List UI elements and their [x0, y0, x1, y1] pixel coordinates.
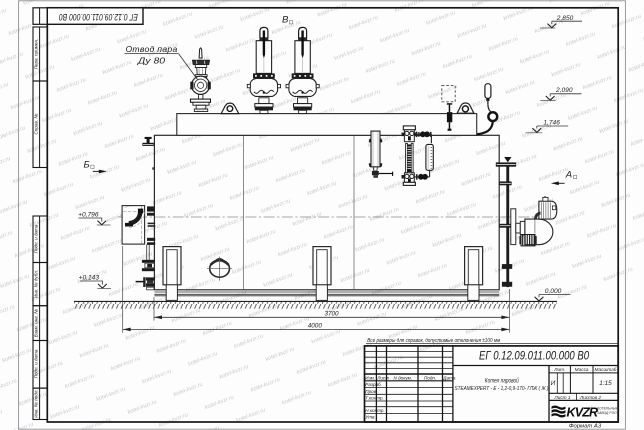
svg-text:kotel-kvzr.ru: kotel-kvzr.ru [208, 0, 240, 10]
svg-text:kotel-kvzr.ru: kotel-kvzr.ru [632, 205, 644, 222]
svg-text:kotel-kvzr.ru: kotel-kvzr.ru [630, 131, 644, 148]
svg-text:Инв. № подл.: Инв. № подл. [34, 389, 39, 418]
svg-text:Подп.: Подп. [424, 375, 436, 380]
svg-text:kotel-kvzr.ru: kotel-kvzr.ru [250, 377, 282, 394]
svg-text:kotel-kvzr.ru: kotel-kvzr.ru [121, 177, 153, 194]
svg-text:kotel-kvzr.ru: kotel-kvzr.ru [0, 408, 4, 425]
svg-text:kotel-kvzr.ru: kotel-kvzr.ru [507, 153, 539, 170]
svg-text:Справ. №: Справ. № [34, 114, 39, 135]
svg-text:kotel-kvzr.ru: kotel-kvzr.ru [442, 53, 474, 70]
svg-text:kotel-kvzr.ru: kotel-kvzr.ru [198, 172, 230, 189]
svg-text:2,090: 2,090 [555, 87, 573, 94]
svg-text:kotel-kvzr.ru: kotel-kvzr.ru [319, 76, 351, 93]
svg-text:2,850: 2,850 [556, 15, 574, 22]
svg-text:kotel-kvzr.ru: kotel-kvzr.ru [87, 90, 119, 107]
svg-text:kotel-kvzr.ru: kotel-kvzr.ru [41, 107, 73, 124]
svg-text:kotel-kvzr.ru: kotel-kvzr.ru [265, 346, 297, 363]
svg-text:kotel-kvzr.ru: kotel-kvzr.ru [519, 49, 551, 66]
svg-text:kotel-kvzr.ru: kotel-kvzr.ru [611, 13, 643, 30]
svg-text:kotel-kvzr.ru: kotel-kvzr.ru [225, 37, 257, 54]
svg-text:Лист: Лист [376, 375, 389, 380]
svg-text:kotel-kvzr.ru: kotel-kvzr.ru [425, 10, 457, 27]
svg-text:Подп. и дата: Подп. и дата [34, 349, 39, 378]
svg-text:kotel-kvzr.ru: kotel-kvzr.ru [584, 149, 616, 166]
svg-text:kotel-kvzr.ru: kotel-kvzr.ru [292, 211, 324, 228]
svg-text:Инв. № дубл.: Инв. № дубл. [34, 270, 39, 298]
svg-text:kotel-kvzr.ru: kotel-kvzr.ru [0, 199, 29, 216]
svg-text:kotel-kvzr.ru: kotel-kvzr.ru [156, 338, 188, 355]
svg-text:kotel-kvzr.ru: kotel-kvzr.ru [0, 156, 12, 173]
svg-text:Н.контр.: Н.контр. [365, 408, 384, 413]
svg-text:kotel-kvzr.ru: kotel-kvzr.ru [50, 404, 82, 421]
svg-text:kotel-kvzr.ru: kotel-kvzr.ru [488, 36, 520, 53]
svg-text:kotel-kvzr.ru: kotel-kvzr.ru [430, 158, 462, 175]
svg-text:kotel-kvzr.ru: kotel-kvzr.ru [73, 120, 105, 137]
svg-text:kotel-kvzr.ru: kotel-kvzr.ru [572, 253, 604, 270]
svg-text:kotel-kvzr.ru: kotel-kvzr.ru [167, 159, 199, 176]
svg-text:ЗАВОД РЭП: ЗАВОД РЭП [597, 411, 617, 415]
svg-text:kotel-kvzr.ru: kotel-kvzr.ru [446, 201, 478, 218]
svg-text:kotel-kvzr.ru: kotel-kvzr.ru [0, 7, 8, 24]
svg-text:kotel-kvzr.ru: kotel-kvzr.ru [551, 62, 583, 79]
svg-text:kotel-kvzr.ru: kotel-kvzr.ru [279, 316, 311, 333]
svg-text:Все размеры для справок, допу: Все размеры для справок, допустимые откл… [367, 338, 500, 344]
svg-text:kotel-kvzr.ru: kotel-kvzr.ru [75, 194, 107, 211]
svg-text:kotel-kvzr.ru: kotel-kvzr.ru [194, 24, 226, 41]
svg-text:kotel-kvzr.ru: kotel-kvzr.ru [473, 66, 505, 83]
svg-text:kotel-kvzr.ru: kotel-kvzr.ru [601, 192, 633, 209]
svg-text:kotel-kvzr.ru: kotel-kvzr.ru [187, 351, 219, 368]
svg-text:kotel-kvzr.ru: kotel-kvzr.ru [0, 304, 17, 321]
svg-text:Формат А3: Формат А3 [569, 424, 602, 430]
svg-text:kotel-kvzr.ru: kotel-kvzr.ru [108, 281, 140, 298]
svg-text:kotel-kvzr.ru: kotel-kvzr.ru [465, 319, 497, 336]
svg-text:КОТЕЛЬНЫЙ: КОТЕЛЬНЫЙ [597, 406, 619, 410]
svg-text:А: А [565, 170, 572, 181]
svg-text:kotel-kvzr.ru: kotel-kvzr.ru [171, 307, 203, 324]
svg-text:Масштаб: Масштаб [595, 367, 617, 372]
svg-text:N докум.: N докум. [394, 375, 413, 380]
svg-text:kotel-kvzr.ru: kotel-kvzr.ru [296, 359, 328, 376]
svg-text:kotel-kvzr.ru: kotel-kvzr.ru [25, 64, 57, 81]
svg-text:Дата: Дата [442, 375, 456, 380]
svg-text:kotel-kvzr.ru: kotel-kvzr.ru [569, 179, 601, 196]
svg-text:kotel-kvzr.ru: kotel-kvzr.ru [428, 84, 460, 101]
svg-text:kotel-kvzr.ru: kotel-kvzr.ru [386, 250, 418, 267]
svg-text:Изм.: Изм. [365, 375, 375, 380]
svg-text:kotel-kvzr.ru: kotel-kvzr.ru [357, 311, 389, 328]
svg-text:Ду 80: Ду 80 [137, 55, 165, 65]
svg-text:kotel-kvzr.ru: kotel-kvzr.ru [56, 77, 88, 94]
svg-text:kotel-kvzr.ru: kotel-kvzr.ru [348, 15, 380, 32]
svg-text:kotel-kvzr.ru: kotel-kvzr.ru [173, 381, 205, 398]
svg-text:kotel-kvzr.ru: kotel-kvzr.ru [240, 6, 272, 23]
svg-text:KVZR: KVZR [567, 406, 599, 420]
svg-text:В: В [282, 15, 289, 26]
svg-text:kotel-kvzr.ru: kotel-kvzr.ru [219, 364, 251, 381]
svg-text:kotel-kvzr.ru: kotel-kvzr.ru [4, 421, 36, 430]
svg-text:kotel-kvzr.ru: kotel-kvzr.ru [202, 320, 234, 337]
svg-text:kotel-kvzr.ru: kotel-kvzr.ru [617, 236, 644, 253]
svg-text:kotel-kvzr.ru: kotel-kvzr.ru [204, 394, 236, 411]
svg-text:kotel-kvzr.ru: kotel-kvzr.ru [119, 103, 151, 120]
svg-text:kotel-kvzr.ru: kotel-kvzr.ru [263, 272, 295, 289]
svg-text:0,000: 0,000 [545, 288, 562, 295]
svg-text:kotel-kvzr.ru: kotel-kvzr.ru [555, 210, 587, 227]
svg-text:kotel-kvzr.ru: kotel-kvzr.ru [91, 238, 123, 255]
svg-text:Б: Б [84, 159, 90, 170]
svg-text:kotel-kvzr.ru: kotel-kvzr.ru [354, 237, 386, 254]
svg-text:kotel-kvzr.ru: kotel-kvzr.ru [185, 277, 217, 294]
svg-text:kotel-kvzr.ru: kotel-kvzr.ru [415, 189, 447, 206]
svg-text:Перв. примен.: Перв. примен. [34, 39, 39, 70]
svg-text:kotel-kvzr.ru: kotel-kvzr.ru [553, 136, 585, 153]
svg-text:Листов 2: Листов 2 [579, 395, 601, 400]
svg-text:Разраб.: Разраб. [365, 382, 382, 387]
svg-text:kotel-kvzr.ru: kotel-kvzr.ru [306, 180, 338, 197]
svg-text:kotel-kvzr.ru: kotel-kvzr.ru [229, 185, 261, 202]
svg-text:kotel-kvzr.ru: kotel-kvzr.ru [628, 57, 644, 74]
svg-text:kotel-kvzr.ru: kotel-kvzr.ru [457, 23, 489, 40]
svg-text:kotel-kvzr.ru: kotel-kvzr.ru [10, 94, 42, 111]
svg-text:kotel-kvzr.ru: kotel-kvzr.ru [526, 271, 558, 288]
svg-text:kotel-kvzr.ru: kotel-kvzr.ru [135, 146, 167, 163]
svg-text:Взам. инв. №: Взам. инв. № [34, 309, 39, 337]
svg-text:kotel-kvzr.ru: kotel-kvzr.ru [246, 228, 278, 245]
svg-text:kotel-kvzr.ru: kotel-kvzr.ru [96, 386, 128, 403]
svg-text:kotel-kvzr.ru: kotel-kvzr.ru [275, 167, 307, 184]
svg-text:kotel-kvzr.ru: kotel-kvzr.ru [365, 58, 397, 75]
svg-text:kotel-kvzr.ru: kotel-kvzr.ru [39, 33, 71, 50]
svg-text:kotel-kvzr.ru: kotel-kvzr.ru [16, 317, 48, 334]
svg-text:kotel-kvzr.ru: kotel-kvzr.ru [158, 412, 190, 429]
svg-text:Т.контр.: Т.контр. [365, 396, 384, 401]
svg-text:Масса: Масса [575, 367, 589, 372]
svg-text:Пров.: Пров. [365, 389, 377, 394]
svg-text:kotel-kvzr.ru: kotel-kvzr.ru [476, 140, 508, 157]
svg-text:kotel-kvzr.ru: kotel-kvzr.ru [0, 334, 2, 351]
svg-text:kotel-kvzr.ru: kotel-kvzr.ru [102, 59, 134, 76]
svg-text:kotel-kvzr.ru: kotel-kvzr.ru [334, 45, 366, 62]
svg-text:kotel-kvzr.ru: kotel-kvzr.ru [0, 125, 27, 142]
svg-text:Котел паровой: Котел паровой [485, 377, 519, 384]
svg-text:3700: 3700 [324, 310, 339, 317]
svg-text:kotel-kvzr.ru: kotel-kvzr.ru [0, 51, 25, 68]
svg-text:kotel-kvzr.ru: kotel-kvzr.ru [64, 373, 96, 390]
svg-text:kotel-kvzr.ru: kotel-kvzr.ru [27, 138, 59, 155]
svg-text:kotel-kvzr.ru: kotel-kvzr.ru [133, 72, 165, 89]
svg-text:kotel-kvzr.ru: kotel-kvzr.ru [400, 219, 432, 236]
svg-text:kotel-kvzr.ru: kotel-kvzr.ru [71, 46, 103, 63]
svg-text:Лист 1: Лист 1 [554, 395, 571, 400]
svg-text:kotel-kvzr.ru: kotel-kvzr.ru [380, 27, 412, 44]
svg-text:kotel-kvzr.ru: kotel-kvzr.ru [317, 2, 349, 19]
svg-text:kotel-kvzr.ru: kotel-kvzr.ru [615, 162, 644, 179]
svg-text:kotel-kvzr.ru: kotel-kvzr.ru [398, 145, 430, 162]
svg-text:kotel-kvzr.ru: kotel-kvzr.ru [0, 378, 19, 395]
svg-text:kotel-kvzr.ru: kotel-kvzr.ru [152, 190, 184, 207]
svg-text:kotel-kvzr.ru: kotel-kvzr.ru [369, 206, 401, 223]
svg-text:Лит.: Лит. [553, 367, 565, 372]
svg-text:kotel-kvzr.ru: kotel-kvzr.ru [461, 171, 493, 188]
svg-text:kotel-kvzr.ru: kotel-kvzr.ru [93, 312, 125, 329]
svg-text:kotel-kvzr.ru: kotel-kvzr.ru [505, 79, 537, 96]
svg-text:kotel-kvzr.ru: kotel-kvzr.ru [582, 75, 614, 92]
svg-text:kotel-kvzr.ru: kotel-kvzr.ru [417, 263, 449, 280]
svg-text:kotel-kvzr.ru: kotel-kvzr.ru [110, 355, 142, 372]
svg-text:kotel-kvzr.ru: kotel-kvzr.ru [342, 341, 374, 358]
svg-text:ЕГ 0.12.09.011.00.000 В0: ЕГ 0.12.09.011.00.000 В0 [479, 349, 589, 363]
svg-text:kotel-kvzr.ru: kotel-kvzr.ru [215, 216, 247, 233]
svg-text:kotel-kvzr.ru: kotel-kvzr.ru [338, 193, 370, 210]
svg-text:kotel-kvzr.ru: kotel-kvzr.ru [212, 141, 244, 158]
svg-text:4000: 4000 [308, 322, 323, 329]
svg-text:kotel-kvzr.ru: kotel-kvzr.ru [60, 225, 92, 242]
svg-text:kotel-kvzr.ru: kotel-kvzr.ru [81, 417, 113, 430]
svg-text:kotel-kvzr.ru: kotel-kvzr.ru [557, 284, 589, 301]
svg-text:kotel-kvzr.ru: kotel-kvzr.ru [597, 44, 629, 61]
svg-text:kotel-kvzr.ru: kotel-kvzr.ru [281, 390, 313, 407]
svg-text:kotel-kvzr.ru: kotel-kvzr.ru [565, 31, 597, 48]
svg-text:kotel-kvzr.ru: kotel-kvzr.ru [321, 150, 353, 167]
svg-text:kotel-kvzr.ru: kotel-kvzr.ru [162, 11, 194, 28]
svg-text:kotel-kvzr.ru: kotel-kvzr.ru [580, 0, 612, 17]
svg-text:Утв.: Утв. [365, 415, 375, 420]
svg-text:kotel-kvzr.ru: kotel-kvzr.ru [45, 256, 77, 273]
svg-text:kotel-kvzr.ru: kotel-kvzr.ru [432, 232, 464, 249]
svg-text:kotel-kvzr.ru: kotel-kvzr.ru [231, 259, 263, 276]
svg-text:kotel-kvzr.ru: kotel-kvzr.ru [0, 230, 14, 247]
svg-text:kotel-kvzr.ru: kotel-kvzr.ru [12, 169, 44, 186]
svg-text:kotel-kvzr.ru: kotel-kvzr.ru [323, 224, 355, 241]
svg-text:kotel-kvzr.ru: kotel-kvzr.ru [104, 133, 136, 150]
svg-text:kotel-kvzr.ru: kotel-kvzr.ru [48, 330, 80, 347]
svg-text:kotel-kvzr.ru: kotel-kvzr.ru [350, 89, 382, 106]
svg-text:ЕГ 0.12.09.011.00.000 В0: ЕГ 0.12.09.011.00.000 В0 [59, 12, 138, 22]
svg-text:kotel-kvzr.ru: kotel-kvzr.ru [233, 333, 265, 350]
svg-text:kotel-kvzr.ru: kotel-kvzr.ru [0, 81, 10, 98]
svg-text:STEAMEXPERT - Е - 1,2-0,9-170-: STEAMEXPERT - Е - 1,2-0,9-170- ГЛЖ ( Ж ) [455, 386, 549, 392]
svg-text:kotel-kvzr.ru: kotel-kvzr.ru [210, 67, 242, 84]
svg-text:+0,143: +0,143 [79, 274, 100, 281]
svg-text:1:15: 1:15 [599, 380, 612, 387]
svg-text:kotel-kvzr.ru: kotel-kvzr.ru [290, 137, 322, 154]
svg-text:kotel-kvzr.ru: kotel-kvzr.ru [394, 0, 426, 14]
svg-text:И: И [551, 380, 556, 387]
svg-text:kotel-kvzr.ru: kotel-kvzr.ru [125, 325, 157, 342]
svg-text:kotel-kvzr.ru: kotel-kvzr.ru [277, 241, 309, 258]
svg-text:kotel-kvzr.ru: kotel-kvzr.ru [0, 273, 31, 290]
svg-text:kotel-kvzr.ru: kotel-kvzr.ru [586, 223, 618, 240]
svg-text:kotel-kvzr.ru: kotel-kvzr.ru [396, 71, 428, 88]
svg-text:kotel-kvzr.ru: kotel-kvzr.ru [141, 368, 173, 385]
svg-text:+0,796: +0,796 [78, 212, 99, 219]
svg-text:kotel-kvzr.ru: kotel-kvzr.ru [2, 347, 34, 364]
svg-text:kotel-kvzr.ru: kotel-kvzr.ru [327, 372, 359, 389]
svg-text:Отвод пара: Отвод пара [125, 44, 177, 54]
svg-text:kotel-kvzr.ru: kotel-kvzr.ru [127, 399, 159, 416]
svg-text:kotel-kvzr.ru: kotel-kvzr.ru [244, 154, 276, 171]
svg-text:kotel-kvzr.ru: kotel-kvzr.ru [340, 267, 372, 284]
svg-text:Подп. и дата: Подп. и дата [34, 224, 39, 253]
svg-text:kotel-kvzr.ru: kotel-kvzr.ru [567, 105, 599, 122]
svg-text:kotel-kvzr.ru: kotel-kvzr.ru [311, 328, 343, 345]
svg-text:1,746: 1,746 [543, 119, 560, 126]
svg-text:kotel-kvzr.ru: kotel-kvzr.ru [79, 343, 111, 360]
svg-text:kotel-kvzr.ru: kotel-kvzr.ru [411, 40, 443, 57]
svg-text:kotel-kvzr.ru: kotel-kvzr.ru [260, 198, 292, 215]
